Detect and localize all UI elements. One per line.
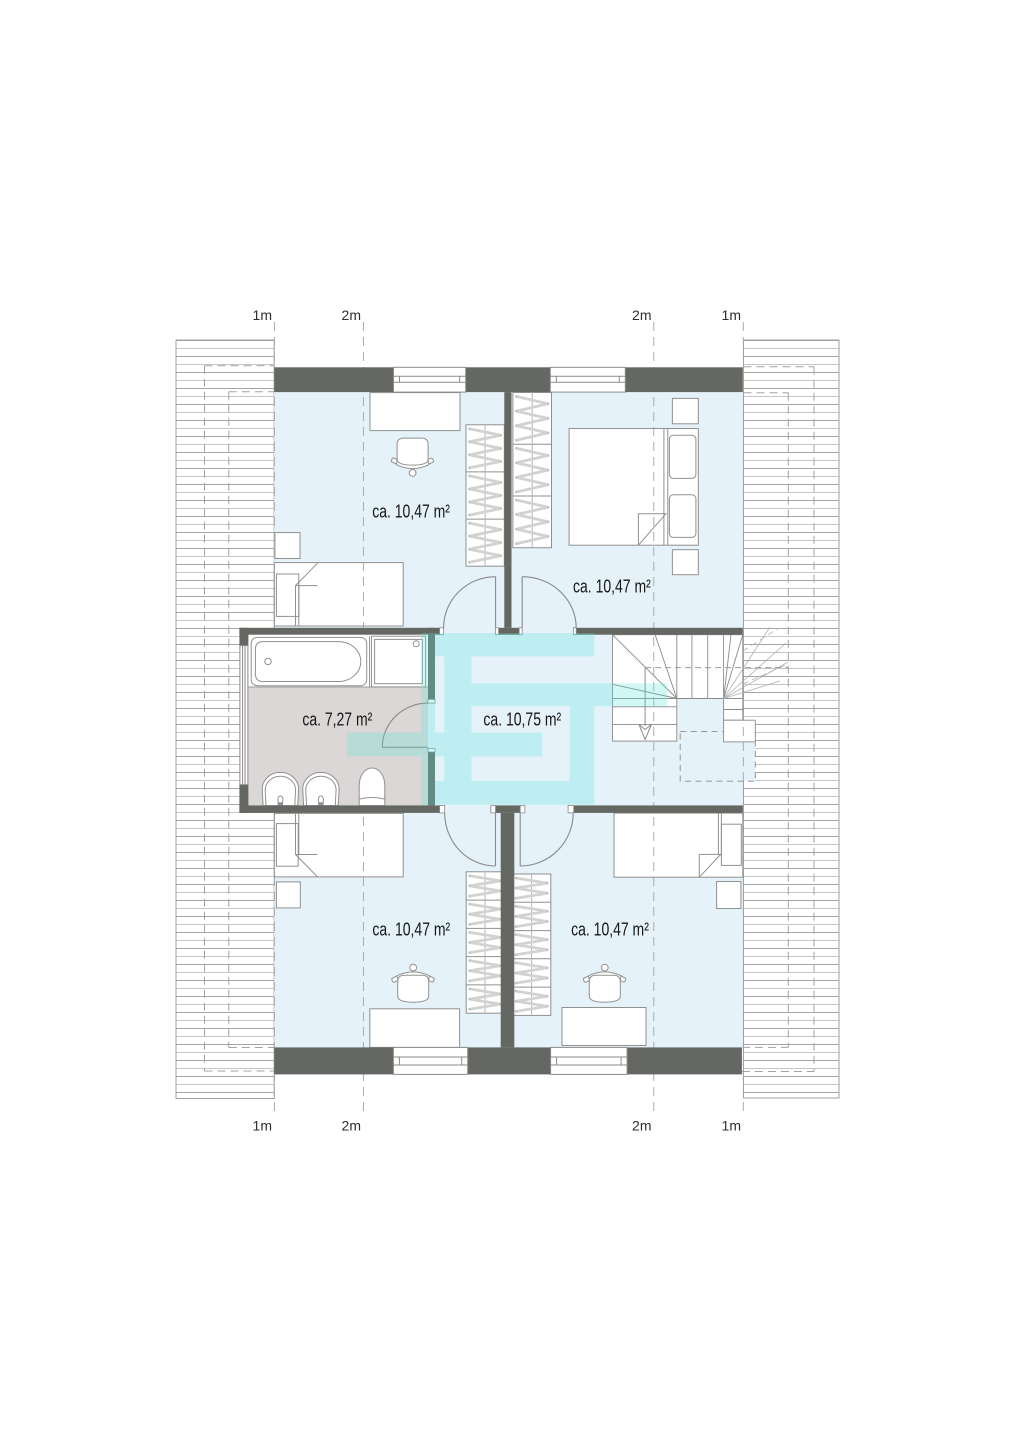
svg-text:ca. 10,47 m²: ca. 10,47 m² (372, 502, 450, 522)
svg-text:1m: 1m (253, 307, 272, 323)
svg-text:ca. 10,75 m²: ca. 10,75 m² (483, 710, 561, 730)
svg-text:ca. 7,27 m²: ca. 7,27 m² (302, 710, 372, 730)
svg-text:ca. 10,47 m²: ca. 10,47 m² (573, 577, 651, 597)
svg-text:2m: 2m (632, 307, 651, 323)
svg-text:2m: 2m (342, 307, 361, 323)
svg-text:1m: 1m (722, 307, 741, 323)
svg-text:2m: 2m (632, 1118, 651, 1134)
svg-text:1m: 1m (253, 1118, 272, 1134)
svg-text:1m: 1m (722, 1118, 741, 1134)
svg-text:ca. 10,47 m²: ca. 10,47 m² (571, 920, 649, 940)
svg-text:ca. 10,47 m²: ca. 10,47 m² (372, 920, 450, 940)
svg-text:2m: 2m (342, 1118, 361, 1134)
